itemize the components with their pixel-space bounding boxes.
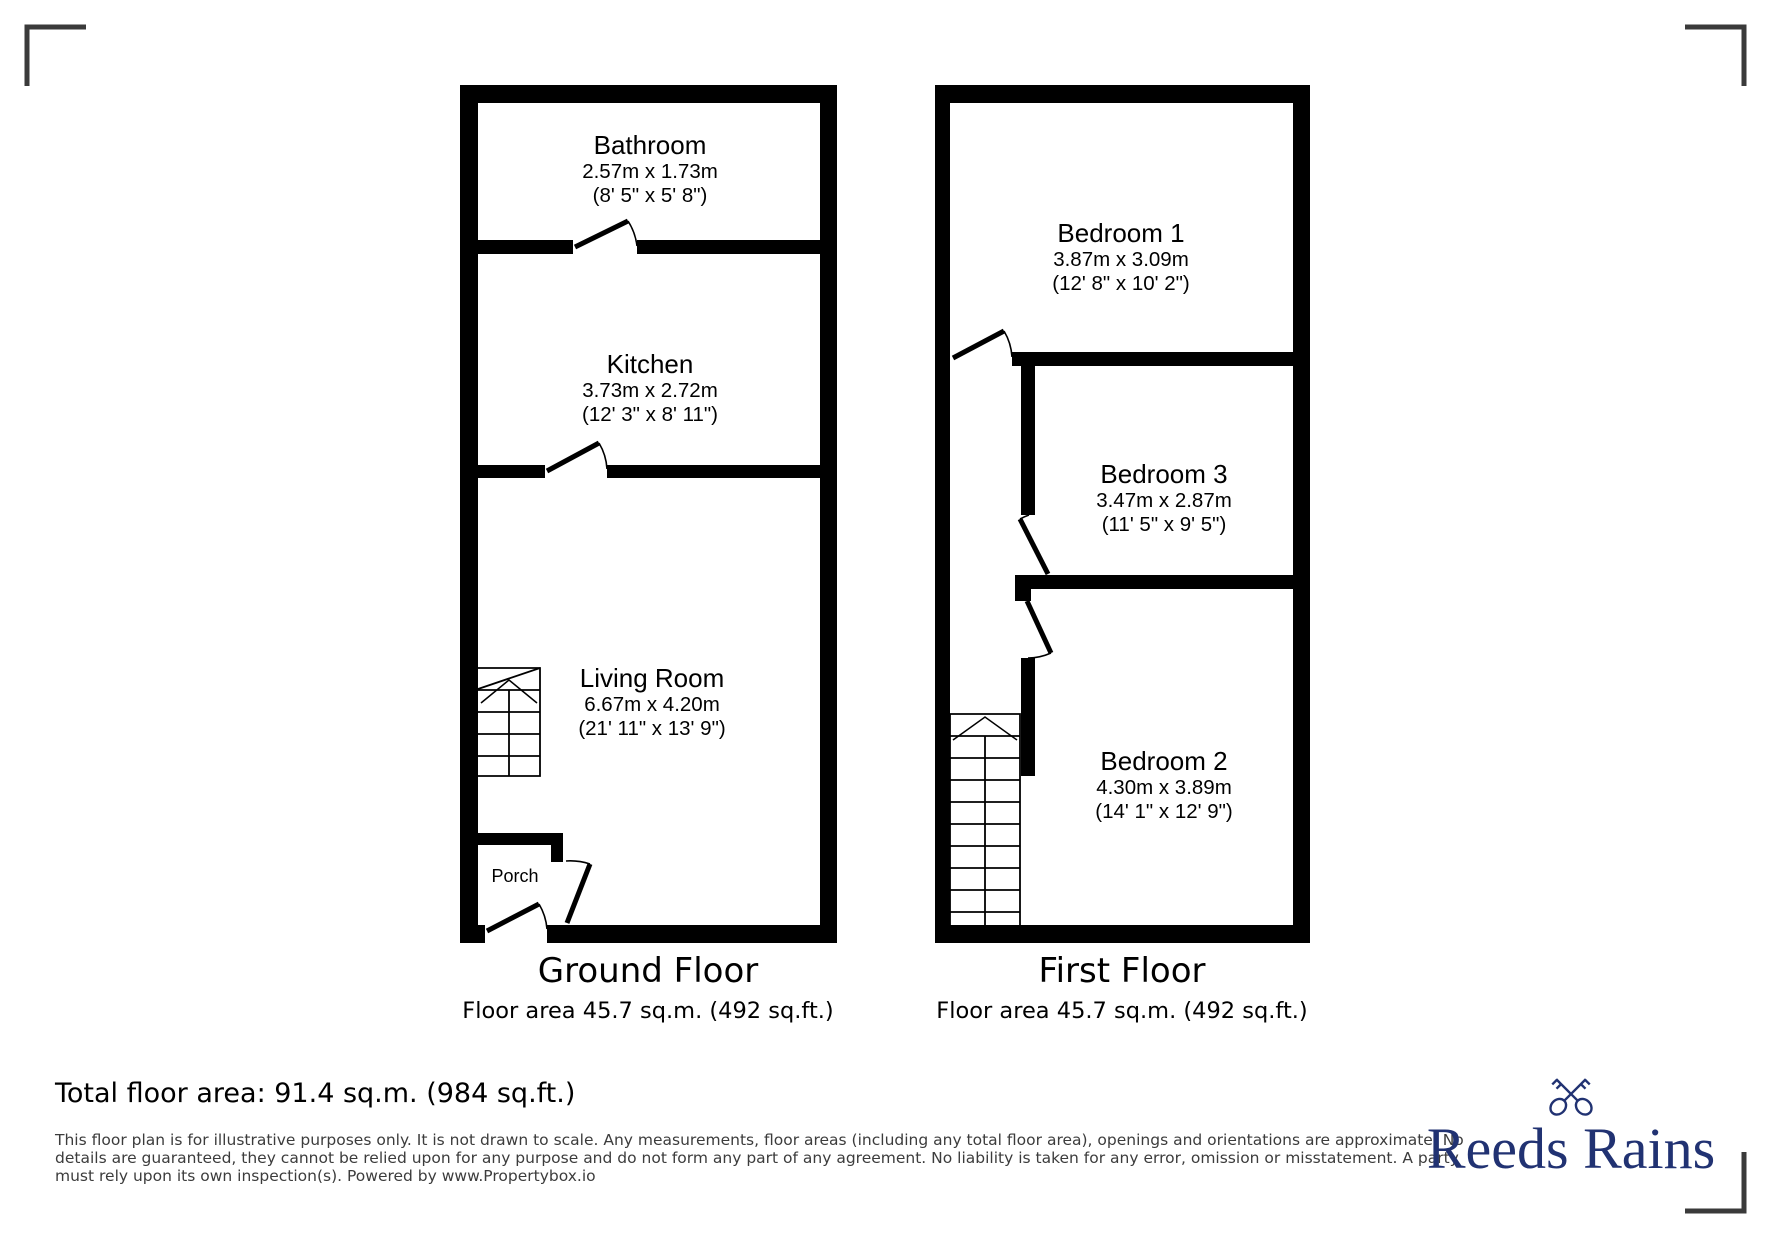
room-label-bathroom: Bathroom 2.57m x 1.73m (8' 5" x 5' 8"): [582, 130, 718, 208]
room-label-bedroom-3: Bedroom 3 3.47m x 2.87m (11' 5" x 9' 5"): [1096, 459, 1232, 537]
corner-mark-top-left: [27, 27, 86, 86]
disclaimer-text: This floor plan is for illustrative purp…: [55, 1131, 1464, 1185]
room-dim-metric: 4.30m x 3.89m: [1095, 776, 1232, 800]
crossed-keys-icon: [1547, 1074, 1594, 1117]
room-name: Living Room: [578, 663, 725, 693]
corner-marks: [27, 27, 1744, 1211]
room-label-bedroom-1: Bedroom 1 3.87m x 3.09m (12' 8" x 10' 2"…: [1052, 218, 1189, 296]
ground-floor-walls: [460, 85, 837, 943]
room-dim-metric: 2.57m x 1.73m: [582, 160, 718, 184]
floorplan-graphics: [0, 0, 1771, 1239]
room-dim-metric: 3.87m x 3.09m: [1052, 248, 1189, 272]
first-floor-doors: [953, 331, 1051, 658]
first-floor-staircase-icon: [950, 714, 1020, 925]
ground-floor-title: Ground Floor: [538, 951, 758, 991]
room-dim-imperial: (14' 1" x 12' 9"): [1095, 800, 1232, 824]
disclaimer-line-2: details are guaranteed, they cannot be r…: [55, 1149, 1464, 1167]
room-dim-metric: 3.47m x 2.87m: [1096, 489, 1232, 513]
room-dim-imperial: (8' 5" x 5' 8"): [582, 184, 718, 208]
bedroom3-door: [1020, 515, 1048, 574]
room-dim-metric: 3.73m x 2.72m: [582, 379, 718, 403]
disclaimer-line-1: This floor plan is for illustrative purp…: [55, 1131, 1464, 1149]
room-label-porch: Porch: [491, 866, 538, 887]
room-name: Kitchen: [582, 349, 718, 379]
kitchen-door: [547, 443, 607, 471]
room-name: Bedroom 1: [1052, 218, 1189, 248]
room-dim-imperial: (12' 3" x 8' 11"): [582, 403, 718, 427]
room-name: Bedroom 2: [1095, 746, 1232, 776]
bathroom-door: [575, 221, 637, 247]
bedroom1-door: [953, 331, 1012, 358]
ground-floor-doors: [487, 221, 637, 931]
brand-logo-text: Reeds Rains: [1427, 1120, 1715, 1178]
ground-floor-area: Floor area 45.7 sq.m. (492 sq.ft.): [462, 998, 833, 1024]
ground-floor-staircase-icon: [478, 668, 540, 776]
porch-inner-door: [566, 861, 590, 923]
room-label-bedroom-2: Bedroom 2 4.30m x 3.89m (14' 1" x 12' 9"…: [1095, 746, 1232, 824]
total-floor-area: Total floor area: 91.4 sq.m. (984 sq.ft.…: [55, 1078, 575, 1109]
room-dim-imperial: (12' 8" x 10' 2"): [1052, 272, 1189, 296]
room-dim-imperial: (11' 5" x 9' 5"): [1096, 513, 1232, 537]
bedroom2-door: [1027, 601, 1051, 658]
room-name: Bedroom 3: [1096, 459, 1232, 489]
ground-floor-plan: [460, 85, 837, 943]
room-dim-metric: 6.67m x 4.20m: [578, 693, 725, 717]
first-floor-area: Floor area 45.7 sq.m. (492 sq.ft.): [936, 998, 1307, 1024]
room-name: Bathroom: [582, 130, 718, 160]
floorplan-page: Bathroom 2.57m x 1.73m (8' 5" x 5' 8") K…: [0, 0, 1771, 1239]
first-floor-title: First Floor: [1039, 951, 1206, 991]
room-dim-imperial: (21' 11" x 13' 9"): [578, 717, 725, 741]
front-door: [487, 904, 547, 931]
room-label-kitchen: Kitchen 3.73m x 2.72m (12' 3" x 8' 11"): [582, 349, 718, 427]
disclaimer-line-3: must rely upon its own inspection(s). Po…: [55, 1167, 1464, 1185]
corner-mark-top-right: [1685, 27, 1744, 86]
room-label-living-room: Living Room 6.67m x 4.20m (21' 11" x 13'…: [578, 663, 725, 741]
